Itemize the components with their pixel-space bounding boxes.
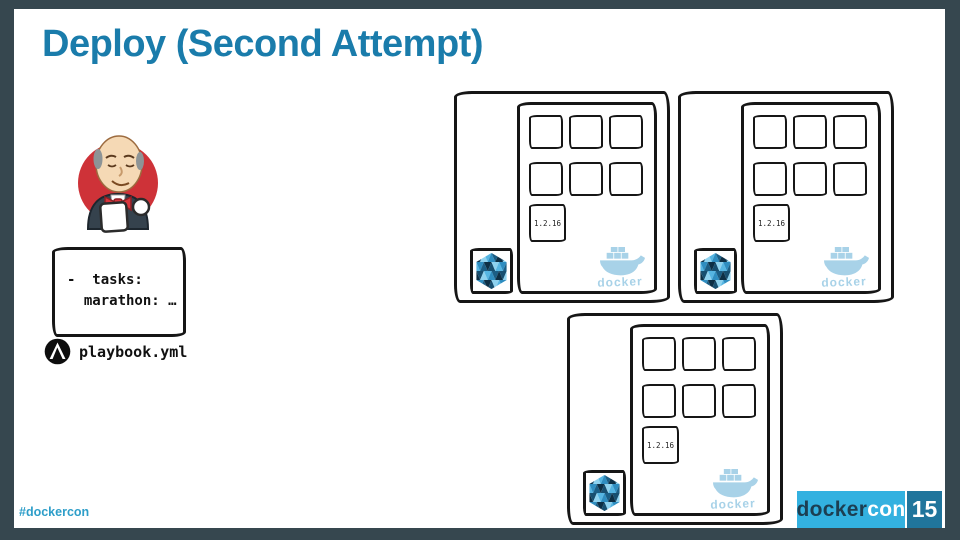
image-version-box: 1.2.16 bbox=[642, 426, 679, 464]
image-version-box: 1.2.16 bbox=[529, 204, 566, 242]
docker-engine-box: 1.2.16 docker bbox=[630, 324, 770, 516]
container-slot bbox=[753, 115, 787, 149]
docker-watermark-label: docker bbox=[702, 496, 764, 512]
image-version-label: 1.2.16 bbox=[758, 219, 785, 228]
dockercon-logo: dockercon 15 bbox=[797, 491, 942, 528]
image-version-box: 1.2.16 bbox=[753, 204, 790, 242]
host-box: 1.2.16 docker bbox=[567, 313, 783, 525]
docker-watermark-label: docker bbox=[813, 274, 875, 290]
mesos-agent-box bbox=[694, 248, 737, 294]
container-slot bbox=[529, 115, 563, 149]
docker-watermark: docker bbox=[589, 247, 651, 289]
container-slot bbox=[833, 162, 867, 196]
mesos-icon bbox=[475, 252, 508, 290]
container-slot bbox=[793, 162, 827, 196]
container-slot bbox=[722, 337, 756, 371]
page-number: 15 bbox=[907, 491, 942, 528]
slide: Deploy (Second Attempt) - tasks: maratho… bbox=[14, 9, 945, 528]
host-box: 1.2.16 docker bbox=[454, 91, 670, 303]
mesos-agent-box bbox=[470, 248, 513, 294]
docker-whale-icon bbox=[706, 469, 760, 499]
mesos-icon bbox=[699, 252, 732, 290]
container-slot bbox=[753, 162, 787, 196]
docker-watermark: docker bbox=[813, 247, 875, 289]
wordmark-docker: docker bbox=[797, 498, 868, 522]
container-slot bbox=[569, 115, 603, 149]
wordmark-con: con bbox=[867, 498, 905, 522]
page-title: Deploy (Second Attempt) bbox=[42, 23, 483, 66]
docker-whale-icon bbox=[593, 247, 647, 277]
container-slot bbox=[722, 384, 756, 418]
container-slot bbox=[682, 384, 716, 418]
dockercon-wordmark: dockercon bbox=[797, 491, 905, 528]
mesos-agent-box bbox=[583, 470, 626, 516]
code-line: marathon: … bbox=[67, 291, 183, 312]
playbook-code-box: - tasks: marathon: … bbox=[52, 247, 186, 337]
container-slot bbox=[569, 162, 603, 196]
container-slot bbox=[833, 115, 867, 149]
image-version-label: 1.2.16 bbox=[534, 219, 561, 228]
slide-frame: { "header": { "title": "Deploy (Second A… bbox=[0, 0, 960, 540]
container-slot bbox=[609, 162, 643, 196]
docker-engine-box: 1.2.16 docker bbox=[741, 102, 881, 294]
image-version-label: 1.2.16 bbox=[647, 441, 674, 450]
container-slot bbox=[529, 162, 563, 196]
container-slot bbox=[642, 384, 676, 418]
container-grid bbox=[642, 337, 764, 418]
container-slot bbox=[793, 115, 827, 149]
jenkins-mascot-icon bbox=[72, 117, 164, 237]
hashtag: #dockercon bbox=[19, 505, 89, 519]
ansible-icon bbox=[44, 338, 71, 365]
docker-whale-icon bbox=[817, 247, 871, 277]
playbook-file-row: playbook.yml bbox=[44, 338, 187, 365]
playbook-filename: playbook.yml bbox=[79, 343, 187, 361]
container-grid bbox=[529, 115, 651, 196]
container-slot bbox=[609, 115, 643, 149]
docker-watermark-label: docker bbox=[589, 274, 651, 290]
docker-watermark: docker bbox=[702, 469, 764, 511]
docker-engine-box: 1.2.16 docker bbox=[517, 102, 657, 294]
host-box: 1.2.16 docker bbox=[678, 91, 894, 303]
container-slot bbox=[682, 337, 716, 371]
container-grid bbox=[753, 115, 875, 196]
mesos-icon bbox=[588, 474, 621, 512]
container-slot bbox=[642, 337, 676, 371]
code-line: - tasks: bbox=[67, 270, 183, 291]
